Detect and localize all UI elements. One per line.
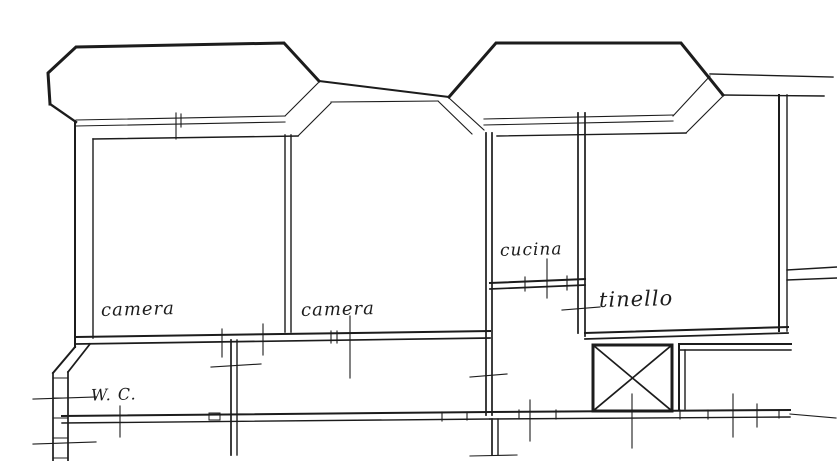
- room-label-camera-middle: camera: [301, 300, 375, 320]
- exterior-right-walls: [710, 74, 837, 331]
- room-label-tinello: tinello: [599, 288, 674, 311]
- cucina-walls: [490, 113, 600, 336]
- balcony-l-wall: [679, 344, 791, 409]
- room-label-camera-left: camera: [101, 300, 175, 320]
- camera-rooms-bottom-wall: [76, 316, 490, 378]
- room-label-cucina: cucina: [500, 241, 563, 260]
- wc-exterior-wall: [33, 344, 96, 461]
- floor-plan-canvas: camera camera cucina tinello W. C.: [0, 0, 837, 461]
- bay-window-right: [438, 43, 723, 134]
- bottom-terrace-wall: [62, 394, 836, 448]
- bay-window-left: [48, 43, 331, 139]
- camera-middle-room-walls: [470, 133, 517, 456]
- room-label-wc: W. C.: [91, 386, 137, 403]
- corridor-wall: [211, 340, 261, 455]
- bay-connector-walls: [319, 81, 449, 102]
